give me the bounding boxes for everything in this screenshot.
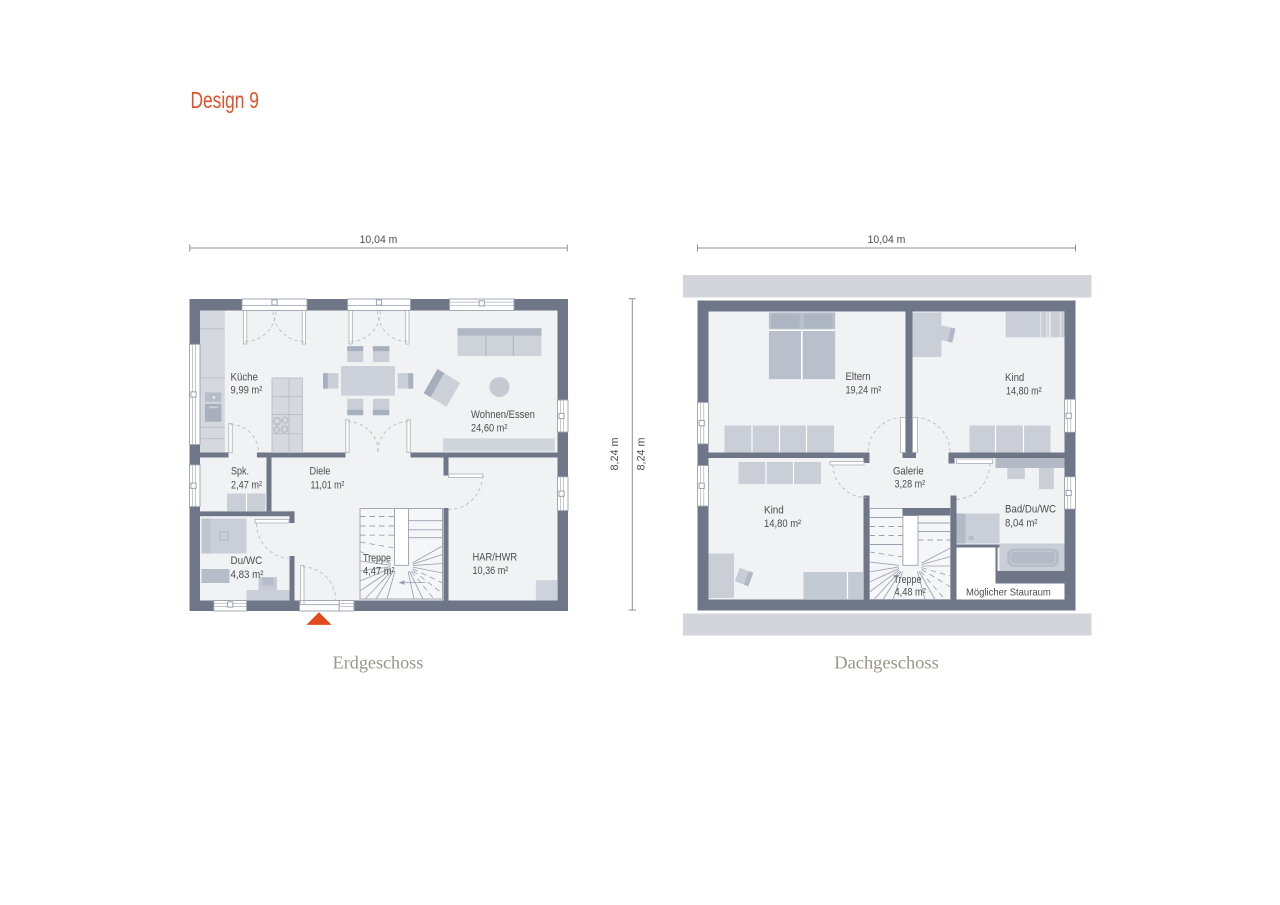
svg-text:Spk.: Spk. [231, 466, 249, 478]
svg-text:HAR/HWR: HAR/HWR [473, 552, 518, 564]
svg-text:4,48 m²: 4,48 m² [895, 587, 927, 599]
svg-text:Erdgeschoss: Erdgeschoss [333, 653, 424, 673]
svg-text:2,47 m²: 2,47 m² [231, 480, 262, 492]
svg-text:8,24 m: 8,24 m [636, 438, 648, 471]
svg-text:3,28 m²: 3,28 m² [895, 479, 926, 491]
svg-text:Wohnen/Essen: Wohnen/Essen [471, 409, 535, 421]
svg-text:Möglicher Stauraum: Möglicher Stauraum [966, 587, 1051, 599]
svg-text:8,24 m: 8,24 m [609, 438, 621, 471]
svg-text:14,80 m²: 14,80 m² [764, 518, 801, 530]
svg-text:11,01 m²: 11,01 m² [311, 480, 345, 492]
svg-text:10,04 m: 10,04 m [868, 234, 906, 246]
svg-text:24,60 m²: 24,60 m² [471, 423, 508, 435]
svg-text:Design 9: Design 9 [191, 87, 259, 113]
svg-text:10,36 m²: 10,36 m² [473, 565, 509, 577]
svg-text:4,47 m²: 4,47 m² [363, 566, 395, 578]
svg-text:10,04 m: 10,04 m [360, 234, 398, 246]
svg-text:Eltern: Eltern [846, 371, 871, 383]
svg-text:Küche: Küche [231, 372, 258, 384]
svg-text:Kind: Kind [764, 505, 784, 517]
svg-text:Treppe: Treppe [894, 574, 922, 586]
svg-text:Galerie: Galerie [893, 466, 924, 478]
svg-text:Bad/Du/WC: Bad/Du/WC [1005, 504, 1056, 516]
svg-text:19,24 m²: 19,24 m² [846, 385, 882, 397]
svg-text:9,99 m²: 9,99 m² [231, 385, 263, 397]
svg-text:Dachgeschoss: Dachgeschoss [834, 653, 939, 673]
svg-text:14,80 m²: 14,80 m² [1006, 386, 1042, 398]
svg-text:4,83 m²: 4,83 m² [231, 569, 264, 581]
svg-text:Treppe: Treppe [363, 553, 391, 565]
svg-text:Du/WC: Du/WC [231, 555, 263, 567]
svg-text:Diele: Diele [310, 466, 331, 478]
svg-text:8,04 m²: 8,04 m² [1005, 518, 1038, 530]
svg-text:Kind: Kind [1005, 372, 1024, 384]
